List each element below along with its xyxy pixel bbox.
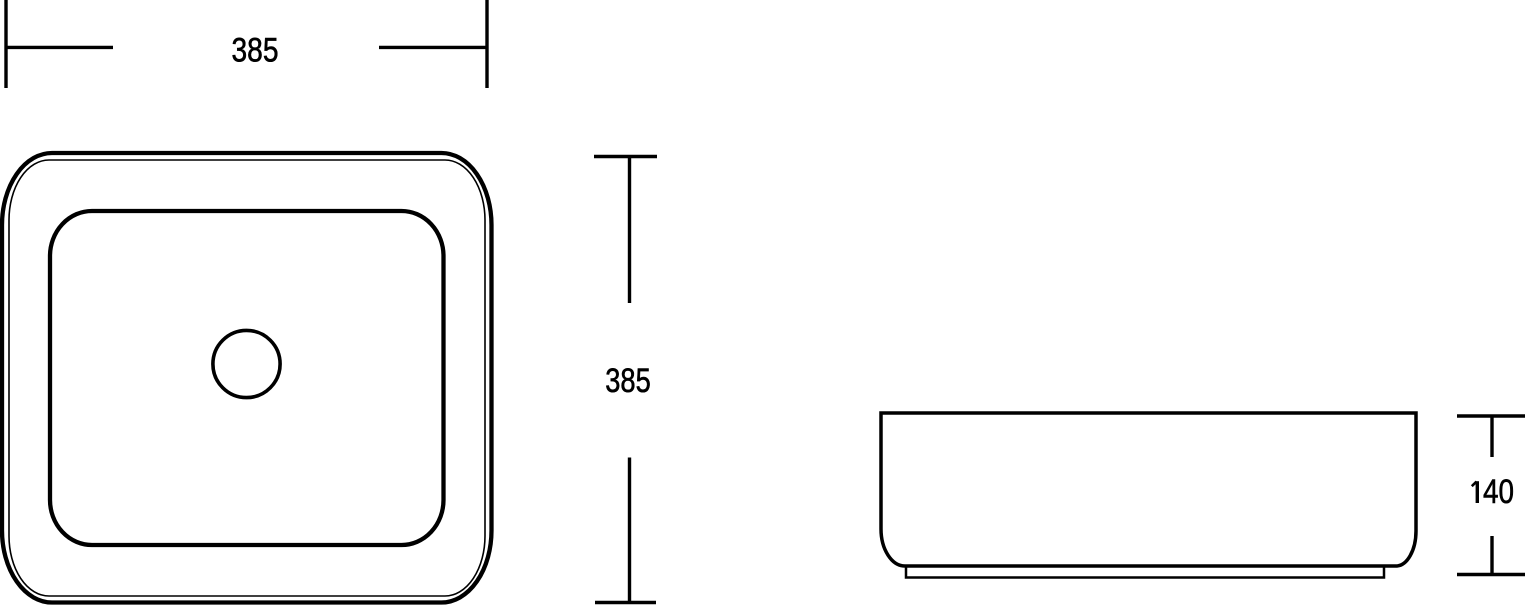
svg-text:385: 385 — [605, 362, 651, 400]
svg-text:385: 385 — [232, 32, 279, 70]
svg-text:40: 40 — [1483, 473, 1514, 511]
